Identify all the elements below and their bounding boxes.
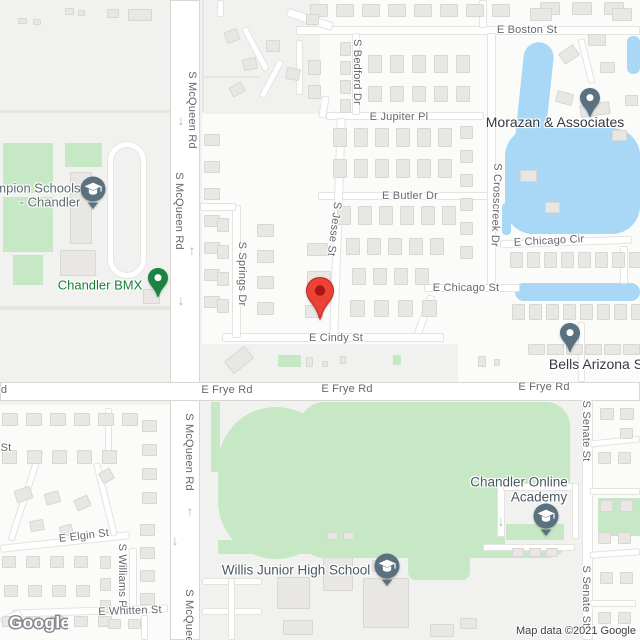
building xyxy=(343,532,354,540)
building xyxy=(414,4,432,17)
building xyxy=(28,585,42,597)
building xyxy=(98,413,114,426)
building xyxy=(322,361,328,367)
building xyxy=(412,55,426,73)
park-area xyxy=(278,355,301,367)
building xyxy=(346,238,360,255)
chandler-online-academy-pin[interactable] xyxy=(533,502,559,542)
building xyxy=(18,18,27,24)
building xyxy=(277,577,310,609)
building xyxy=(379,206,393,225)
building xyxy=(266,40,280,52)
building xyxy=(422,300,437,317)
building xyxy=(257,224,274,237)
building xyxy=(390,55,404,73)
building xyxy=(52,585,66,597)
building xyxy=(527,252,540,268)
building xyxy=(572,2,592,15)
building xyxy=(598,612,611,624)
building xyxy=(354,128,368,147)
building xyxy=(398,300,413,317)
street-label: E Frye Rd xyxy=(518,381,569,393)
building xyxy=(520,170,537,182)
street-label: S Senate St xyxy=(580,566,592,627)
building xyxy=(340,80,351,94)
google-logo-text: Google xyxy=(9,613,68,632)
google-logo[interactable]: Google xyxy=(6,610,68,634)
building xyxy=(466,4,484,17)
street-label: S McQueen Rd xyxy=(186,71,198,149)
building xyxy=(142,492,157,504)
street-road xyxy=(296,40,303,95)
building xyxy=(327,532,338,540)
water-area xyxy=(627,36,640,74)
morazan-pin[interactable] xyxy=(579,87,601,122)
water-area xyxy=(502,203,511,235)
building xyxy=(50,413,66,426)
map-attribution: Map data ©2021 Google xyxy=(516,625,636,637)
building xyxy=(460,174,473,187)
bells-arizona-pin[interactable] xyxy=(559,322,581,357)
building xyxy=(618,612,631,624)
building xyxy=(595,252,608,268)
building xyxy=(140,524,155,536)
street-label: E Frye Rd xyxy=(201,384,252,396)
building xyxy=(512,548,524,557)
building xyxy=(257,250,274,263)
building xyxy=(100,578,111,591)
building xyxy=(26,413,42,426)
building xyxy=(65,8,74,15)
building xyxy=(598,452,611,464)
building xyxy=(217,218,229,232)
building xyxy=(2,556,16,568)
building xyxy=(333,128,347,147)
willis-high-school-pin[interactable] xyxy=(374,552,400,592)
building xyxy=(460,150,473,163)
building xyxy=(529,304,542,320)
building xyxy=(368,55,382,73)
building xyxy=(629,252,640,268)
building xyxy=(354,159,368,178)
building xyxy=(618,452,631,464)
building xyxy=(612,8,632,21)
building xyxy=(257,302,274,315)
building xyxy=(417,128,431,147)
street-road xyxy=(217,0,224,17)
one-way-down-arrow-icon: ↓ xyxy=(178,112,185,128)
building xyxy=(142,444,157,456)
one-way-down-arrow-icon: ↓ xyxy=(498,513,505,529)
building xyxy=(257,276,274,289)
building xyxy=(618,532,631,544)
building xyxy=(367,238,381,255)
building xyxy=(373,268,387,285)
building xyxy=(76,585,90,597)
parcel-line xyxy=(0,110,170,113)
parcel-line xyxy=(0,306,170,310)
building xyxy=(598,532,611,544)
building xyxy=(578,252,591,268)
building xyxy=(140,547,155,559)
street-label: S Bedford Dr xyxy=(351,39,363,105)
building xyxy=(430,624,454,637)
building xyxy=(308,85,321,99)
building xyxy=(333,159,347,178)
building xyxy=(204,161,220,173)
building xyxy=(512,304,525,320)
building xyxy=(440,4,458,17)
park-area xyxy=(393,355,401,365)
building xyxy=(140,570,155,582)
building xyxy=(563,304,576,320)
one-way-up-arrow-icon: ↑ xyxy=(189,242,196,258)
street-label: St xyxy=(1,442,12,454)
building xyxy=(78,10,85,16)
building xyxy=(340,61,351,75)
building xyxy=(340,42,351,56)
street-label: S McQueen Rd xyxy=(183,413,195,491)
poi-label-willis-junior-high-school[interactable]: Willis Junior High School xyxy=(222,563,371,578)
building xyxy=(456,86,470,102)
building xyxy=(352,268,366,285)
building xyxy=(368,86,382,102)
champion-schools-pin[interactable] xyxy=(80,175,106,215)
building xyxy=(614,304,627,320)
building xyxy=(442,206,456,225)
park-area xyxy=(65,143,102,167)
building xyxy=(530,8,552,21)
building xyxy=(460,222,473,235)
building xyxy=(74,556,88,568)
building xyxy=(460,198,473,211)
building xyxy=(409,238,423,255)
building xyxy=(620,572,633,584)
street-label: E Whitten St xyxy=(98,604,162,618)
building xyxy=(362,4,380,17)
building xyxy=(612,252,625,268)
street-road xyxy=(228,578,235,640)
building xyxy=(390,86,404,102)
building xyxy=(620,500,633,512)
building xyxy=(460,618,477,629)
building xyxy=(438,128,452,147)
street-label: S Springs Dr xyxy=(236,242,248,307)
building xyxy=(460,126,473,139)
map-canvas[interactable]: E Boston StS Bedford DrE Jupiter PlE But… xyxy=(0,0,640,640)
chandler-bmx-pin[interactable] xyxy=(147,267,169,302)
building xyxy=(546,304,559,320)
building xyxy=(417,159,431,178)
building xyxy=(52,450,67,464)
street-road xyxy=(141,615,148,640)
building xyxy=(600,62,615,73)
building xyxy=(529,548,541,557)
building xyxy=(374,300,389,317)
building xyxy=(396,159,410,178)
building xyxy=(336,4,354,17)
loop-road xyxy=(108,142,146,278)
building xyxy=(77,450,92,464)
street-label: S Williams Pl xyxy=(116,544,128,611)
building xyxy=(510,252,523,268)
street-label: S Senate St xyxy=(580,401,592,462)
building xyxy=(74,413,90,426)
building xyxy=(388,238,402,255)
building xyxy=(26,556,40,568)
building xyxy=(597,304,610,320)
building xyxy=(217,299,229,313)
building xyxy=(612,130,627,141)
poi-label-morazan-and-associates[interactable]: Morazan & Associates xyxy=(486,114,625,130)
building xyxy=(107,9,119,18)
building xyxy=(600,500,613,512)
building xyxy=(217,245,229,259)
building xyxy=(580,304,593,320)
building xyxy=(492,4,510,17)
building xyxy=(412,86,426,102)
building xyxy=(358,206,372,225)
building xyxy=(128,9,152,21)
street-label: E Cindy St xyxy=(309,332,363,344)
building xyxy=(600,572,613,584)
building xyxy=(434,55,448,73)
building xyxy=(60,250,96,276)
building xyxy=(283,620,313,635)
street-road xyxy=(572,483,579,539)
building xyxy=(285,67,301,81)
street-label: E Boston St xyxy=(497,24,557,36)
park-area xyxy=(218,540,318,554)
building xyxy=(122,413,138,426)
building xyxy=(388,4,406,17)
building xyxy=(604,344,621,355)
building xyxy=(394,268,408,285)
building xyxy=(375,128,389,147)
building xyxy=(142,420,157,432)
building xyxy=(561,252,574,268)
building xyxy=(128,619,141,629)
building xyxy=(102,450,117,464)
building xyxy=(340,356,346,364)
parcel-line xyxy=(202,0,204,112)
building xyxy=(74,616,88,627)
street-label: E Chicago St xyxy=(433,282,500,294)
building xyxy=(204,188,220,200)
building xyxy=(400,206,414,225)
one-way-down-arrow-icon: ↓ xyxy=(178,292,185,308)
building xyxy=(430,238,444,255)
street-label: E Frye Rd xyxy=(321,383,372,395)
building xyxy=(438,159,452,178)
poi-label-chandler-bmx[interactable]: Chandler BMX xyxy=(58,278,143,293)
building xyxy=(217,272,229,286)
building xyxy=(544,252,557,268)
building xyxy=(434,86,448,102)
building xyxy=(528,344,545,355)
building xyxy=(600,408,614,420)
building xyxy=(375,159,389,178)
building xyxy=(108,619,121,629)
building xyxy=(588,34,606,46)
street-label: E Jupiter Pl xyxy=(370,111,429,123)
building xyxy=(460,246,473,259)
building xyxy=(33,19,41,25)
building xyxy=(4,585,18,597)
building xyxy=(545,202,560,213)
building xyxy=(415,268,429,285)
park-area xyxy=(13,255,43,285)
poi-label-champion-schools-line1[interactable]: Champion Schools xyxy=(0,181,81,196)
building xyxy=(142,468,157,480)
building xyxy=(50,556,64,568)
parcel-line xyxy=(202,76,260,78)
building xyxy=(546,548,558,557)
one-way-up-arrow-icon: ↑ xyxy=(187,503,194,519)
building xyxy=(494,359,500,366)
building xyxy=(2,413,18,426)
building xyxy=(306,357,313,367)
destination-marker[interactable] xyxy=(305,276,335,325)
poi-label-champion-schools-line2[interactable]: - Chandler xyxy=(20,195,81,210)
building xyxy=(623,344,640,355)
building xyxy=(631,304,640,320)
building xyxy=(478,356,486,367)
street-road xyxy=(200,203,236,211)
building xyxy=(456,55,470,73)
street-label: S McQueen Rd xyxy=(183,589,195,640)
building xyxy=(350,300,365,317)
street-label: d xyxy=(1,384,7,396)
building xyxy=(585,344,602,355)
building xyxy=(340,99,351,113)
building xyxy=(421,206,435,225)
building xyxy=(306,14,319,25)
building xyxy=(396,128,410,147)
building xyxy=(204,134,220,146)
building xyxy=(27,450,42,464)
building xyxy=(100,556,111,569)
poi-label-bells-arizona[interactable]: Bells Arizona S xyxy=(549,356,640,372)
building xyxy=(308,60,321,75)
building xyxy=(625,95,638,106)
street-label: S McQueen Rd xyxy=(173,172,185,250)
one-way-down-arrow-icon: ↓ xyxy=(172,532,179,548)
building xyxy=(620,408,634,420)
park-area xyxy=(408,540,470,580)
street-road xyxy=(590,488,640,495)
street-label: E Butler Dr xyxy=(382,190,438,202)
poi-label-chandler-online-academy-line1[interactable]: Chandler Online xyxy=(470,475,568,490)
water-area xyxy=(515,283,640,301)
street-road xyxy=(590,600,636,607)
building xyxy=(620,428,633,439)
